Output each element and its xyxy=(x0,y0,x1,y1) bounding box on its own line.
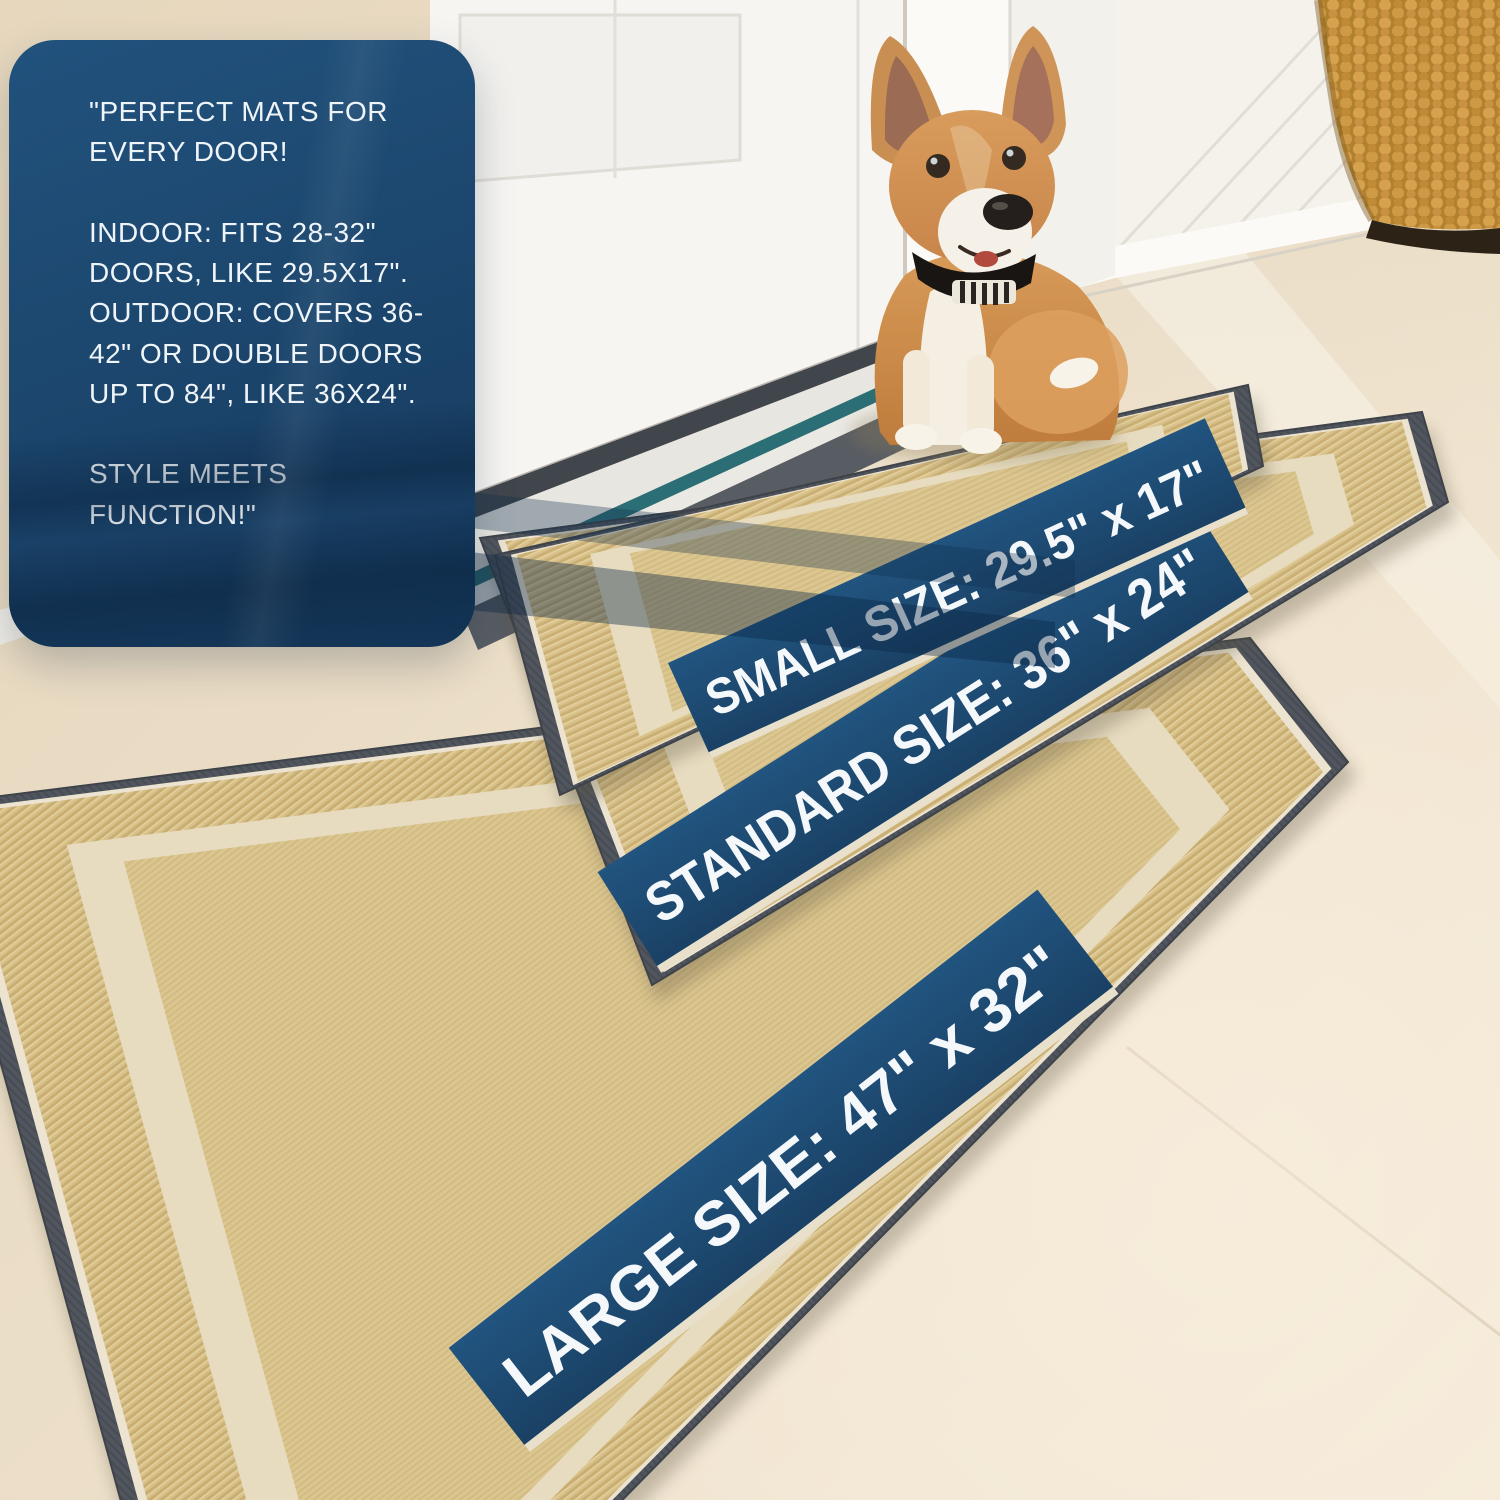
info-box-body: INDOOR: FITS 28-32" DOORS, LIKE 29.5X17"… xyxy=(89,213,457,415)
info-box: "PERFECT MATS FOR EVERY DOOR! INDOOR: FI… xyxy=(9,40,475,647)
dog-collar-tag xyxy=(952,280,1016,305)
dog-eye-glint xyxy=(1007,150,1014,157)
dog-nose xyxy=(983,194,1033,230)
dog-front-leg xyxy=(903,350,930,436)
info-box-tagline: STYLE MEETS FUNCTION!" xyxy=(89,454,457,535)
product-photo: LARGE SIZE: 47" x 32" STANDARD SIZE: 36"… xyxy=(0,0,1500,1500)
dog-paw xyxy=(895,424,937,450)
dog-nose-highlight xyxy=(992,202,1008,210)
door-panel xyxy=(460,15,740,182)
dog-tongue xyxy=(974,251,998,267)
dog-right-eye xyxy=(1002,146,1026,170)
dog-paw xyxy=(960,428,1002,454)
dog-eye-glint xyxy=(931,158,938,165)
info-box-headline: "PERFECT MATS FOR EVERY DOOR! xyxy=(89,92,457,173)
dog-left-eye xyxy=(926,154,950,178)
